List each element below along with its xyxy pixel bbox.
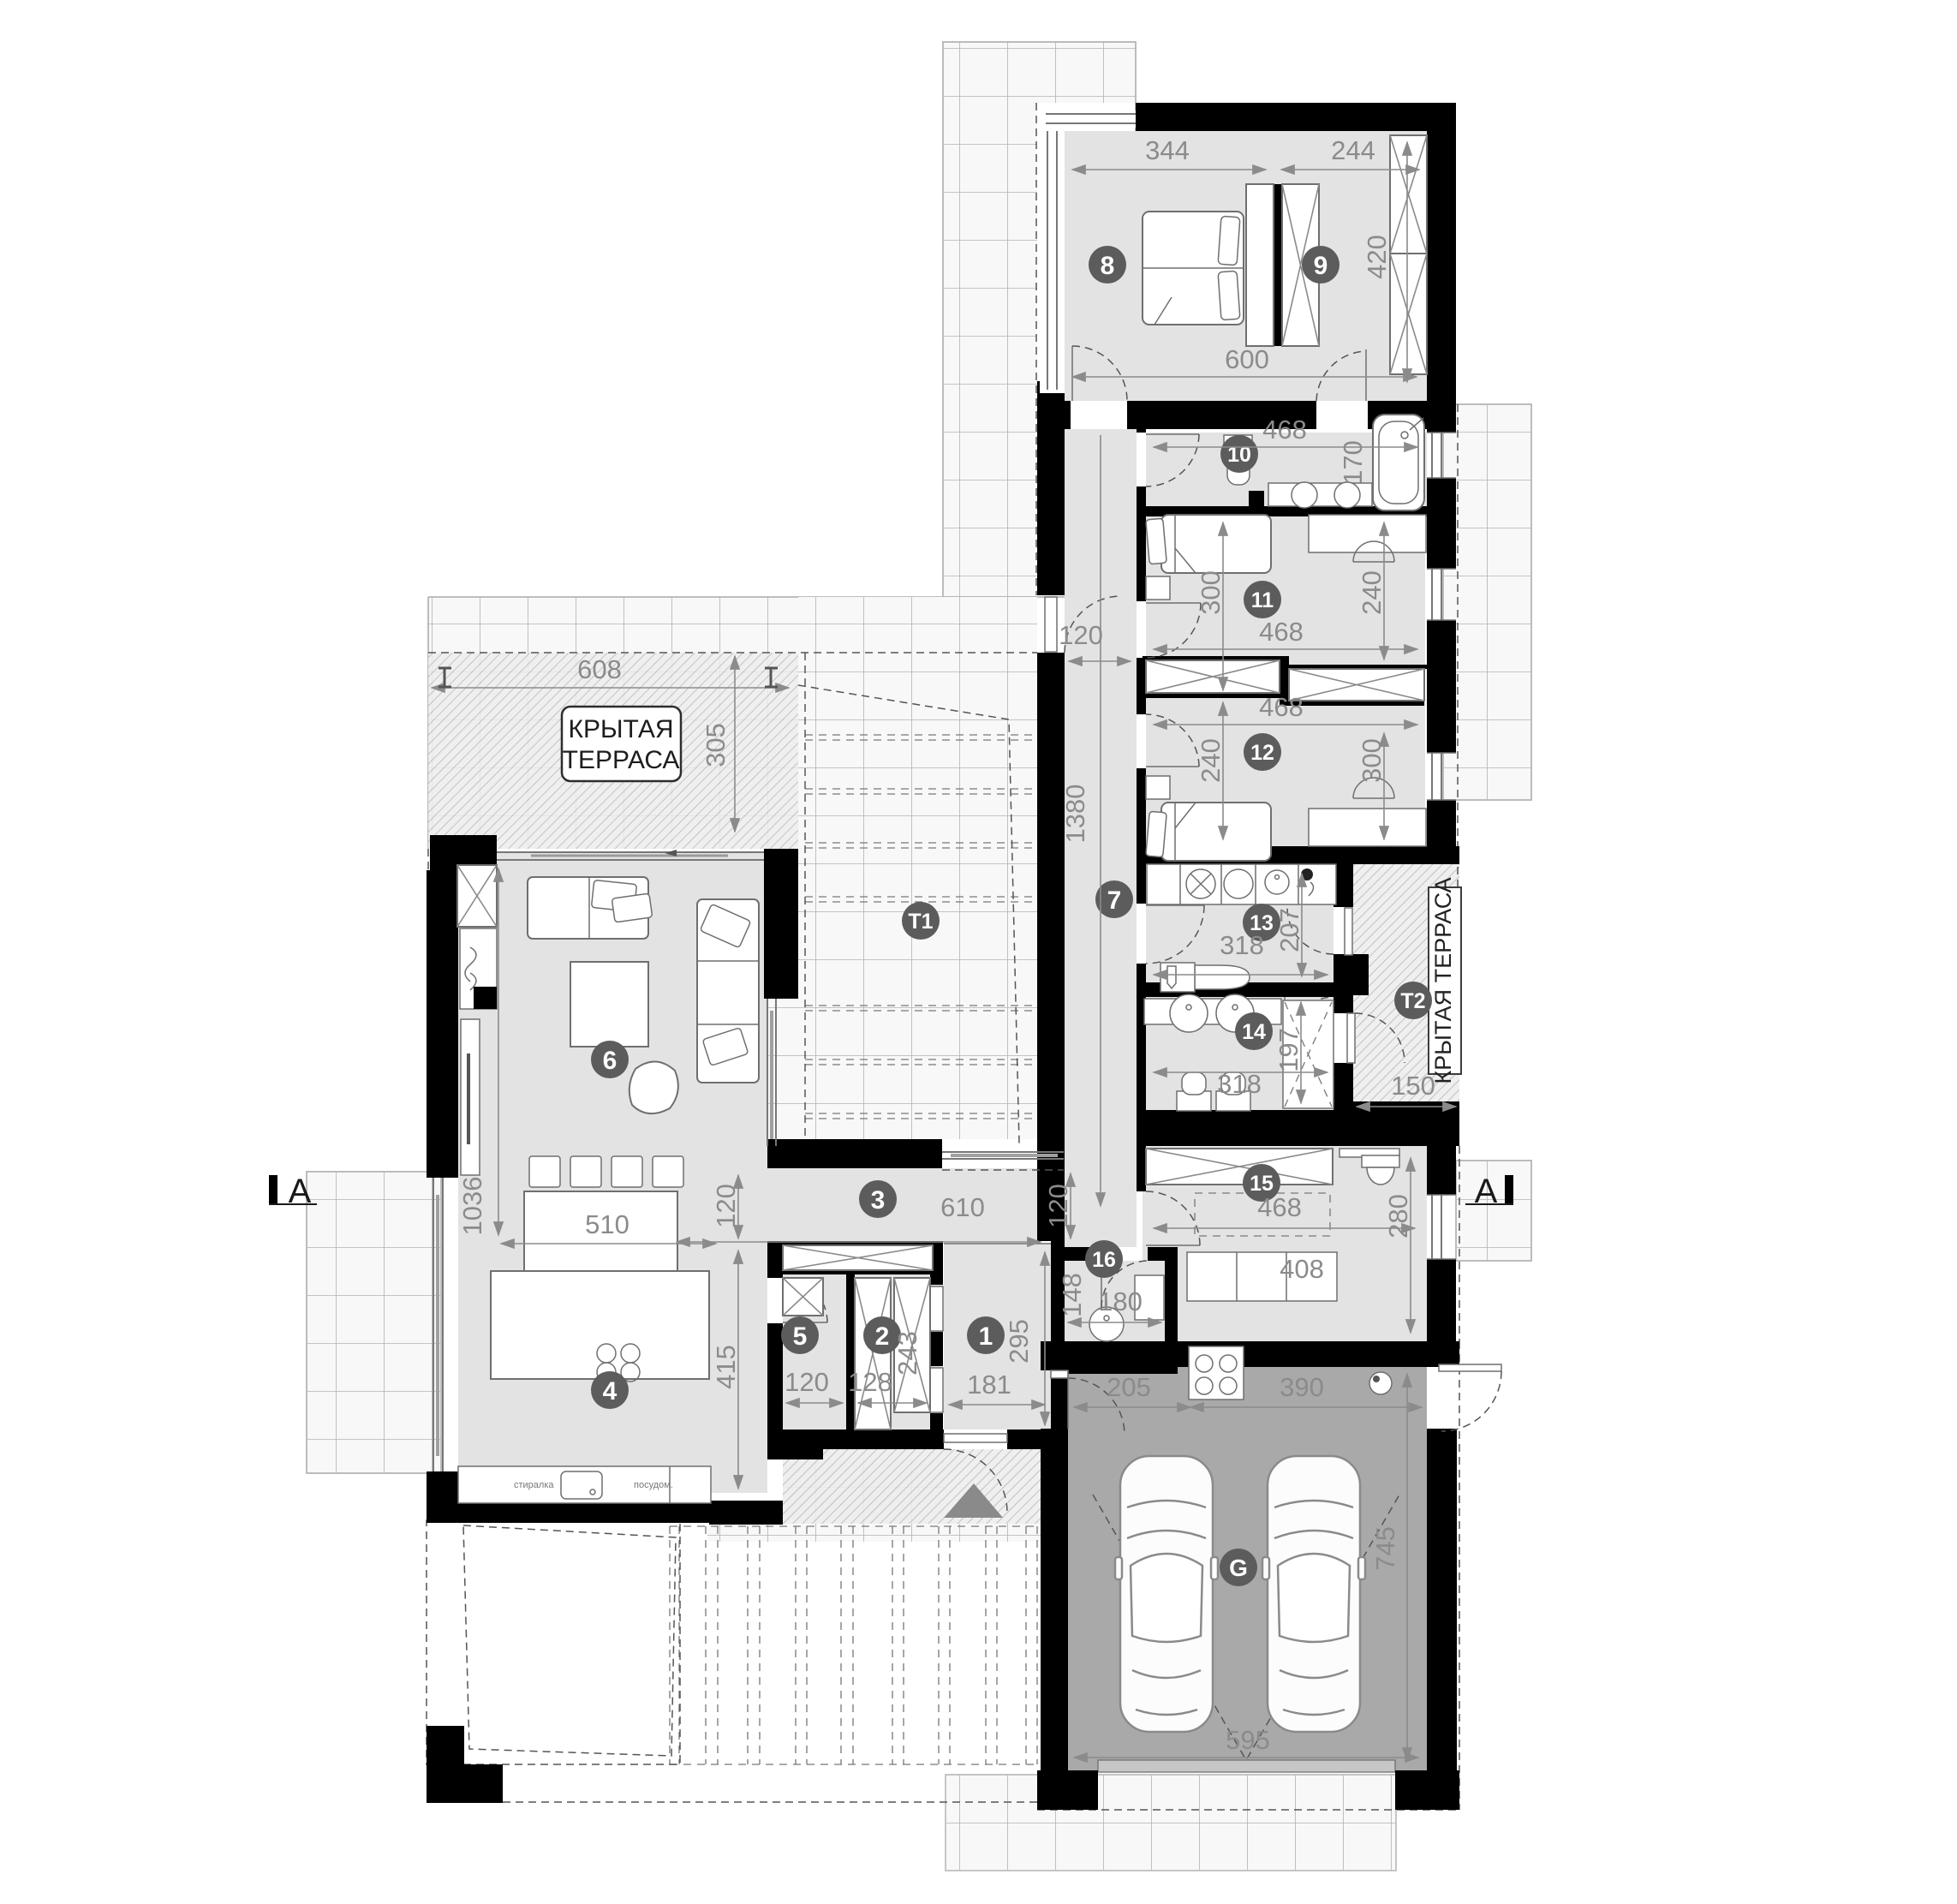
svg-text:5: 5 (793, 1322, 808, 1351)
svg-text:610: 610 (940, 1192, 985, 1222)
svg-text:595: 595 (1226, 1725, 1270, 1755)
svg-text:120: 120 (711, 1184, 741, 1228)
svg-text:4: 4 (603, 1377, 618, 1406)
svg-text:280: 280 (1383, 1194, 1413, 1238)
svg-text:2: 2 (875, 1322, 890, 1351)
svg-text:415: 415 (711, 1345, 741, 1389)
svg-text:600: 600 (1225, 344, 1269, 374)
svg-text:745: 745 (1370, 1526, 1400, 1571)
svg-text:КРЫТАЯ ТЕРРАСА: КРЫТАЯ ТЕРРАСА (1430, 877, 1456, 1083)
svg-text:стиралка: стиралка (514, 1480, 554, 1490)
svg-text:180: 180 (1098, 1286, 1143, 1316)
svg-text:3: 3 (871, 1186, 886, 1215)
svg-text:300: 300 (1196, 570, 1226, 615)
svg-text:11: 11 (1251, 588, 1274, 612)
svg-text:408: 408 (1280, 1254, 1324, 1284)
svg-text:150: 150 (1391, 1071, 1435, 1101)
svg-text:6: 6 (603, 1047, 618, 1075)
svg-text:344: 344 (1145, 135, 1190, 165)
svg-text:205: 205 (1107, 1372, 1151, 1402)
svg-text:240: 240 (1357, 570, 1387, 615)
svg-text:12: 12 (1250, 741, 1274, 765)
svg-text:608: 608 (577, 654, 622, 684)
svg-text:244: 244 (1331, 135, 1375, 165)
svg-text:14: 14 (1242, 1020, 1266, 1044)
svg-text:КРЫТАЯ: КРЫТАЯ (568, 715, 673, 743)
svg-text:T2: T2 (1400, 989, 1425, 1013)
svg-text:318: 318 (1220, 930, 1264, 960)
svg-text:510: 510 (585, 1209, 629, 1239)
svg-text:468: 468 (1259, 617, 1304, 647)
svg-text:1: 1 (979, 1322, 993, 1351)
svg-text:148: 148 (1057, 1273, 1087, 1317)
svg-text:8: 8 (1101, 252, 1115, 280)
svg-text:120: 120 (1059, 620, 1103, 650)
svg-text:390: 390 (1280, 1372, 1324, 1402)
svg-text:120: 120 (785, 1367, 829, 1397)
svg-text:T1: T1 (908, 910, 933, 934)
svg-text:240: 240 (1196, 738, 1226, 783)
svg-text:170: 170 (1338, 440, 1368, 485)
svg-text:295: 295 (1004, 1319, 1034, 1364)
svg-text:243: 243 (892, 1331, 922, 1376)
svg-text:120: 120 (1043, 1184, 1073, 1228)
svg-text:7: 7 (1107, 886, 1122, 915)
svg-text:420: 420 (1362, 235, 1392, 279)
svg-text:128: 128 (848, 1367, 892, 1397)
svg-text:1036: 1036 (457, 1177, 487, 1236)
svg-text:посудом.: посудом. (634, 1480, 673, 1490)
svg-text:9: 9 (1314, 252, 1328, 280)
svg-text:300: 300 (1357, 738, 1387, 783)
svg-text:16: 16 (1092, 1248, 1116, 1272)
svg-text:1380: 1380 (1060, 785, 1090, 844)
svg-text:318: 318 (1217, 1069, 1262, 1099)
svg-text:181: 181 (967, 1370, 1011, 1400)
svg-text:G: G (1229, 1555, 1248, 1581)
svg-text:468: 468 (1262, 415, 1307, 445)
svg-text:305: 305 (701, 723, 731, 767)
svg-text:ТЕРРАСА: ТЕРРАСА (563, 746, 680, 774)
svg-text:468: 468 (1259, 692, 1304, 722)
svg-text:207: 207 (1274, 908, 1304, 952)
svg-text:468: 468 (1257, 1192, 1302, 1222)
svg-text:197: 197 (1274, 1028, 1304, 1072)
